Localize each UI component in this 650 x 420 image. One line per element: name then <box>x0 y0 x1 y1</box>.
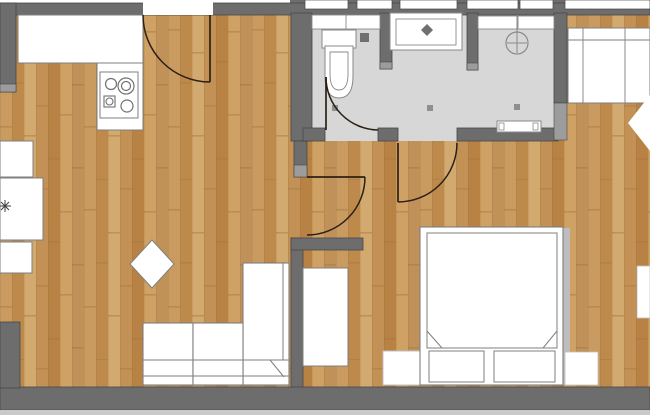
bath-ledge-shower <box>478 16 554 29</box>
wall-cap-stub-toilet <box>380 62 392 69</box>
floor-plan-canvas <box>0 0 650 420</box>
wall-cap-stub-shower <box>467 63 478 70</box>
side-chair-top <box>0 141 33 177</box>
side-table <box>0 178 43 240</box>
dresser-right-edge <box>637 266 650 318</box>
sofa-chaise <box>243 263 289 385</box>
window-1 <box>305 0 348 9</box>
window-6 <box>565 0 650 9</box>
wall-cap-left <box>0 84 16 92</box>
floor-drain-2 <box>427 105 433 111</box>
below-wall-strip <box>0 410 650 415</box>
bath-south-wall-west <box>303 128 325 141</box>
bath-stub-shower <box>467 13 478 70</box>
window-4 <box>467 0 518 9</box>
wardrobe <box>568 28 650 103</box>
bed-duvet <box>427 233 557 348</box>
bedroom-desk <box>303 268 348 366</box>
floor-drain-3 <box>514 104 520 110</box>
window-3 <box>400 0 457 9</box>
left-wall <box>0 3 16 92</box>
pillow-left <box>429 351 484 382</box>
window-2 <box>357 0 392 9</box>
kitchen-counter-top <box>18 15 143 63</box>
entry-door-gap <box>143 0 213 15</box>
window-5 <box>520 0 553 9</box>
side-chair-bottom <box>0 242 32 273</box>
toilet-flush-button <box>360 33 369 42</box>
stove <box>100 72 138 118</box>
divider-wall-upper <box>291 13 312 141</box>
nightstand-right <box>565 352 598 385</box>
wall-cap-bath-east <box>554 103 567 140</box>
nightstand-left <box>383 351 421 385</box>
wall-cap-mid <box>294 165 307 177</box>
bottom-wall <box>0 387 650 410</box>
bath-south-wall-mid <box>378 128 398 141</box>
hallway-stub-wall <box>291 238 363 250</box>
floor-plan <box>0 0 650 420</box>
bath-east-wall <box>554 13 567 103</box>
pillow-right <box>494 351 555 382</box>
toilet-tank <box>322 30 356 48</box>
divider-wall-lower <box>291 238 303 390</box>
bottom-left-wall-block <box>0 322 20 388</box>
